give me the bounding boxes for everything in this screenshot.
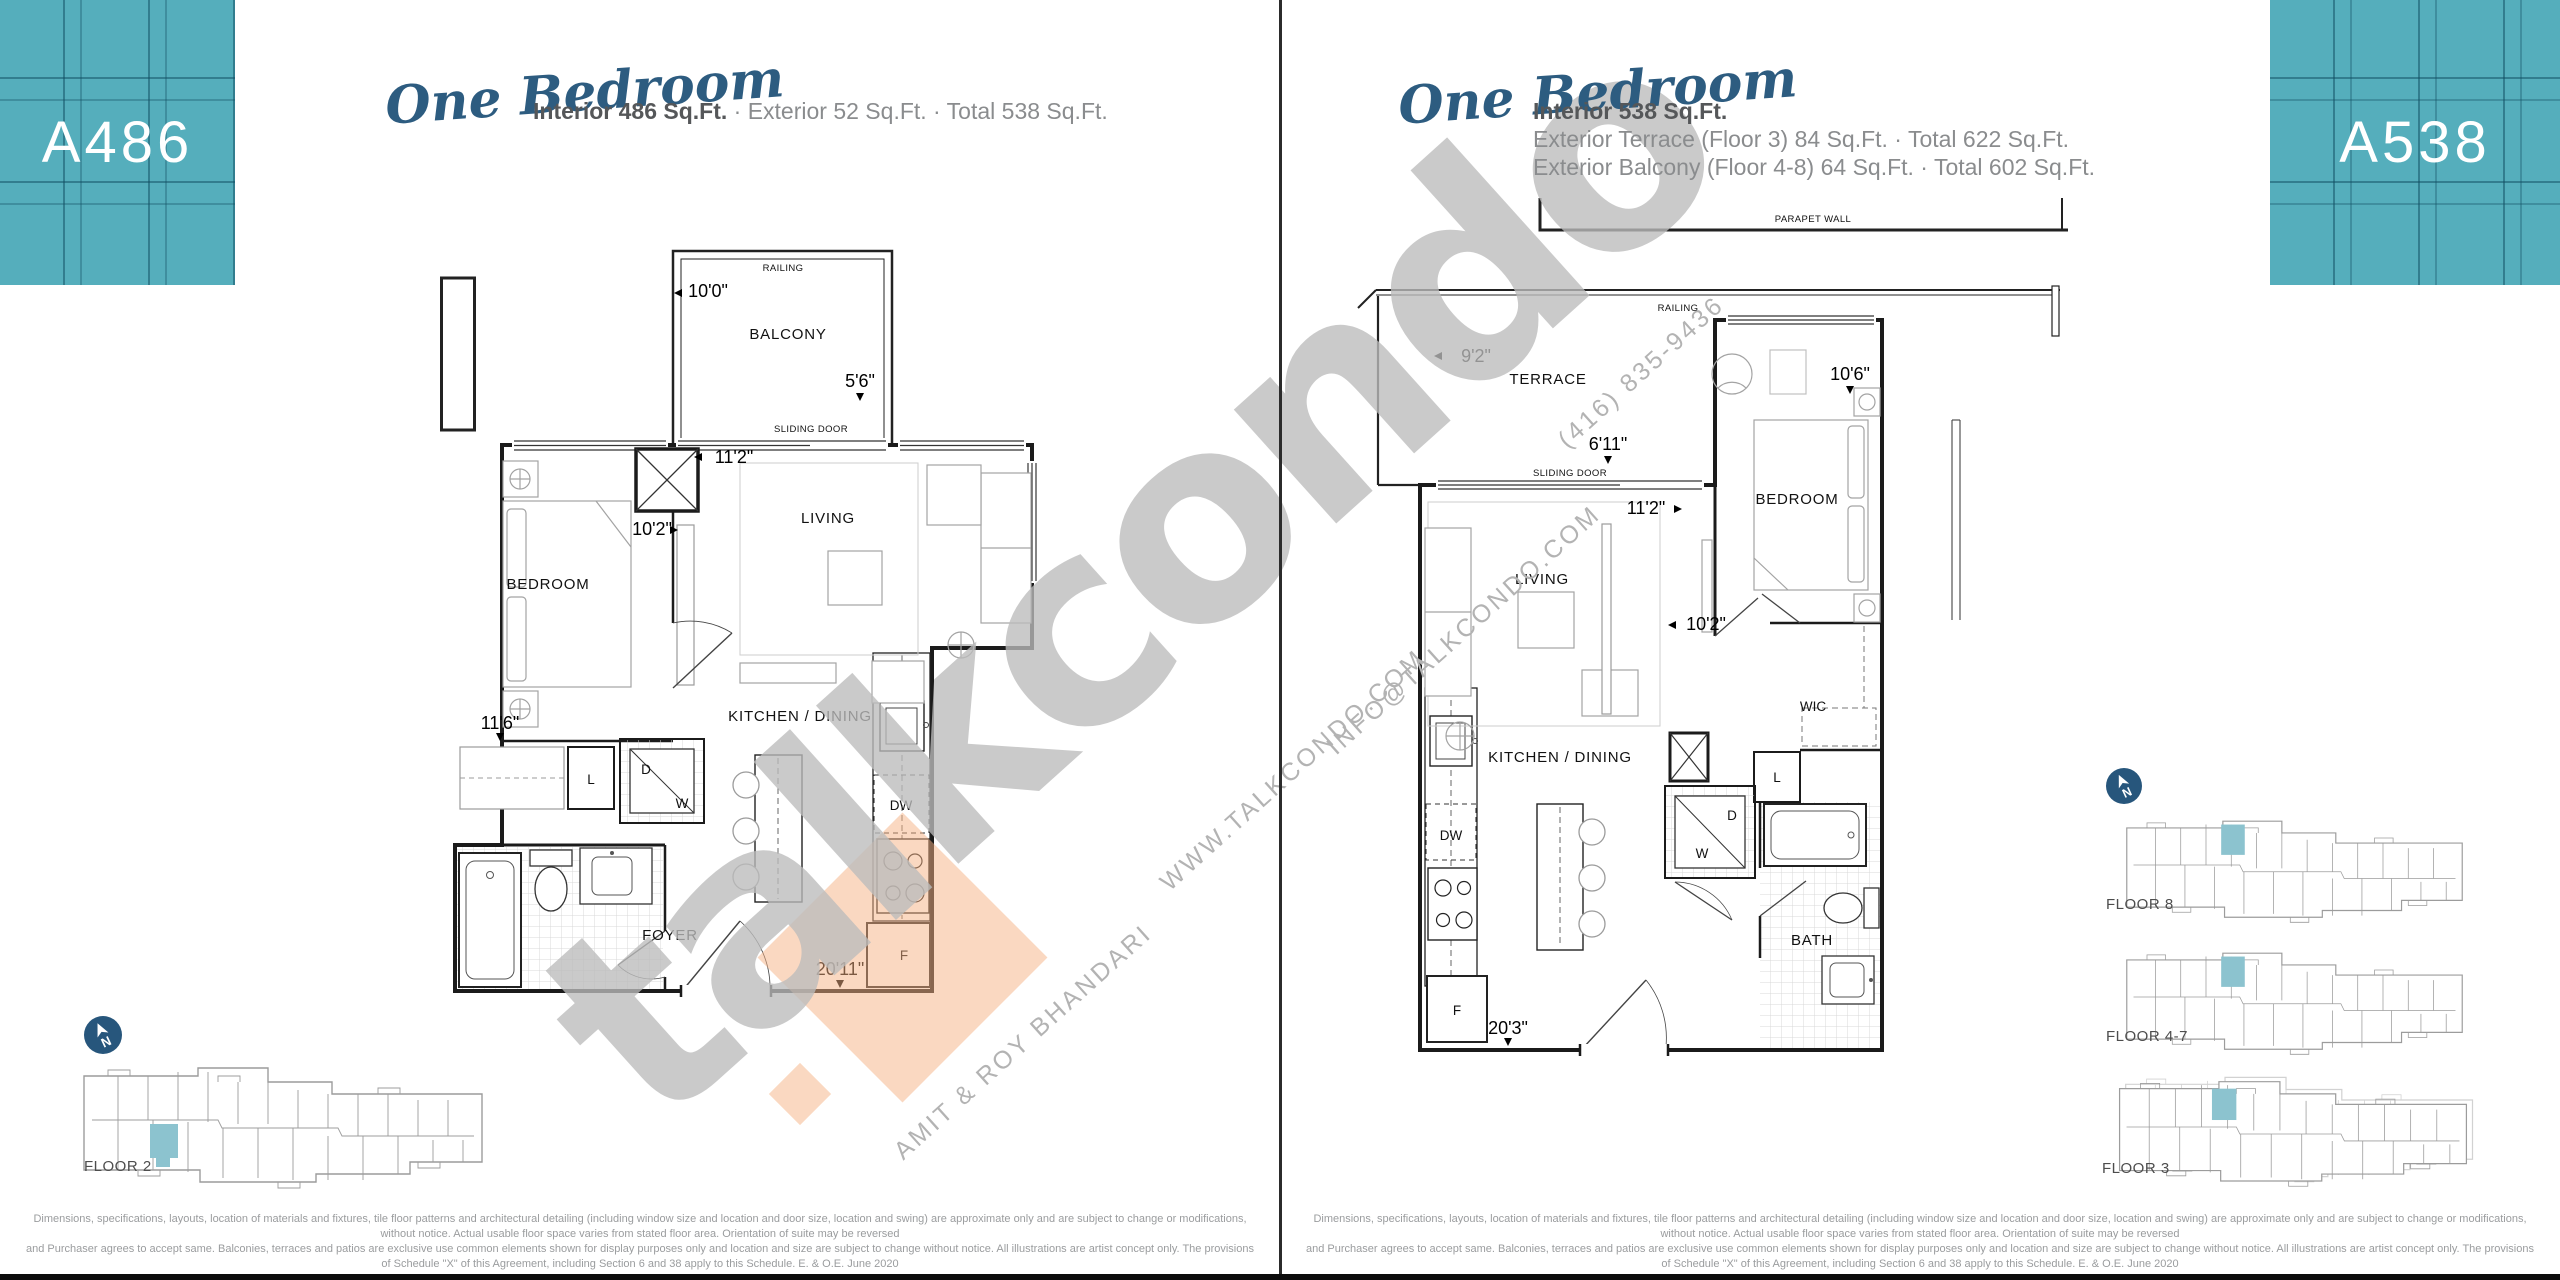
sliding-door-label: SLIDING DOOR	[1533, 468, 1607, 479]
laundry-closet	[1665, 786, 1755, 878]
floor-label-3: FLOOR 3	[2102, 1160, 2170, 1177]
highlighted-unit	[2221, 957, 2245, 987]
dim-bedroom-width: 11'6"	[481, 713, 520, 733]
floorplan-sheet: A486 A538 One Bedroom Interior 486 Sq.Ft…	[0, 0, 2560, 1280]
dim-living-depth: 10'2"	[1686, 614, 1726, 634]
unit-code-block-left: A486	[0, 0, 235, 285]
linen-label: L	[587, 772, 595, 787]
dim-terrace-depth: 6'11"	[1589, 434, 1628, 454]
parapet-label: PARAPET WALL	[1775, 214, 1851, 225]
floor-label-4-7: FLOOR 4-7	[2106, 1028, 2188, 1045]
compass-icon: N	[2106, 768, 2142, 804]
stats-left-interior: Interior 486 Sq.Ft.	[533, 98, 727, 124]
dim-balcony-depth: 5'6"	[845, 371, 875, 391]
disclaimer-line2: and Purchaser agrees to accept same. Bal…	[1306, 1243, 2534, 1270]
bedroom-furniture	[503, 461, 631, 727]
toilet	[1864, 888, 1879, 928]
room-label-wic: WIC	[1800, 699, 1826, 714]
hall-closet	[677, 525, 694, 685]
disclaimer-left: Dimensions, specifications, layouts, loc…	[20, 1212, 1260, 1272]
room-label-bedroom: BEDROOM	[1755, 491, 1838, 508]
compass-letter: N	[99, 1033, 114, 1051]
dryer-label: D	[641, 762, 651, 777]
balcony-railing	[673, 251, 892, 443]
compass-icon: N	[84, 1016, 122, 1054]
unit-code-block-right: A538	[2270, 0, 2560, 285]
dryer-label: D	[1727, 808, 1737, 823]
compass-letter: N	[2120, 784, 2134, 800]
disclaimer-right: Dimensions, specifications, layouts, loc…	[1300, 1212, 2540, 1272]
bottom-bar	[0, 1274, 2560, 1280]
dim-living-width: 11'2"	[1627, 498, 1666, 518]
disclaimer-line2: and Purchaser agrees to accept same. Bal…	[26, 1243, 1254, 1270]
dim-suite-width: 20'3"	[1488, 1018, 1528, 1038]
floor-label-8: FLOOR 8	[2106, 896, 2174, 913]
stats-left: Interior 486 Sq.Ft. · Exterior 52 Sq.Ft.…	[533, 97, 1108, 125]
stove	[1428, 868, 1477, 940]
sliding-door-label: SLIDING DOOR	[774, 424, 848, 435]
dim-balcony-width: 10'0"	[688, 281, 728, 301]
disclaimer-line1: Dimensions, specifications, layouts, loc…	[1313, 1213, 2526, 1240]
highlighted-unit	[150, 1124, 178, 1158]
room-label-balcony: BALCONY	[749, 326, 826, 343]
entry-door	[1580, 1044, 1668, 1056]
dishwasher-label: DW	[1440, 828, 1463, 843]
stats-right-interior: Interior 538 Sq.Ft.	[1533, 98, 1727, 124]
disclaimer-line1: Dimensions, specifications, layouts, loc…	[33, 1213, 1246, 1240]
fridge-label: F	[1453, 1003, 1461, 1018]
bathtub	[1764, 804, 1866, 866]
linen-label: L	[1773, 770, 1781, 785]
stats-right: Interior 538 Sq.Ft. Exterior Terrace (Fl…	[1533, 97, 2095, 181]
dim-living-width: 11'2"	[715, 447, 754, 467]
utility-shaft	[636, 449, 698, 511]
room-label-bedroom: BEDROOM	[506, 576, 589, 593]
room-label-living: LIVING	[801, 510, 855, 527]
washer-label: W	[1696, 846, 1709, 861]
highlighted-unit	[2221, 825, 2245, 855]
coffee-table	[1518, 592, 1574, 648]
unit-code-a486: A486	[42, 109, 193, 176]
floor-label-2: FLOOR 2	[84, 1158, 152, 1175]
highlighted-unit	[2212, 1089, 2236, 1120]
room-label-bath: BATH	[1791, 932, 1833, 949]
panel-divider	[1279, 0, 1282, 1280]
utility-shaft	[1670, 733, 1708, 781]
neighbor-wall-lines	[1952, 420, 1960, 620]
unit-code-a538: A538	[2339, 109, 2490, 176]
toilet	[530, 850, 572, 866]
stats-left-rest: · Exterior 52 Sq.Ft. · Total 538 Sq.Ft.	[727, 98, 1108, 124]
dim-living-depth: 10'2"	[632, 519, 672, 539]
stats-right-line3: Exterior Balcony (Floor 4-8) 64 Sq.Ft. ·…	[1533, 154, 2095, 180]
stats-right-line2: Exterior Terrace (Floor 3) 84 Sq.Ft. · T…	[1533, 126, 2069, 152]
dim-bedroom-width: 10'6"	[1830, 364, 1870, 384]
room-label-kitchen: KITCHEN / DINING	[1488, 749, 1632, 766]
neighbor-wall-stub	[442, 278, 475, 430]
railing-label: RAILING	[763, 263, 804, 274]
